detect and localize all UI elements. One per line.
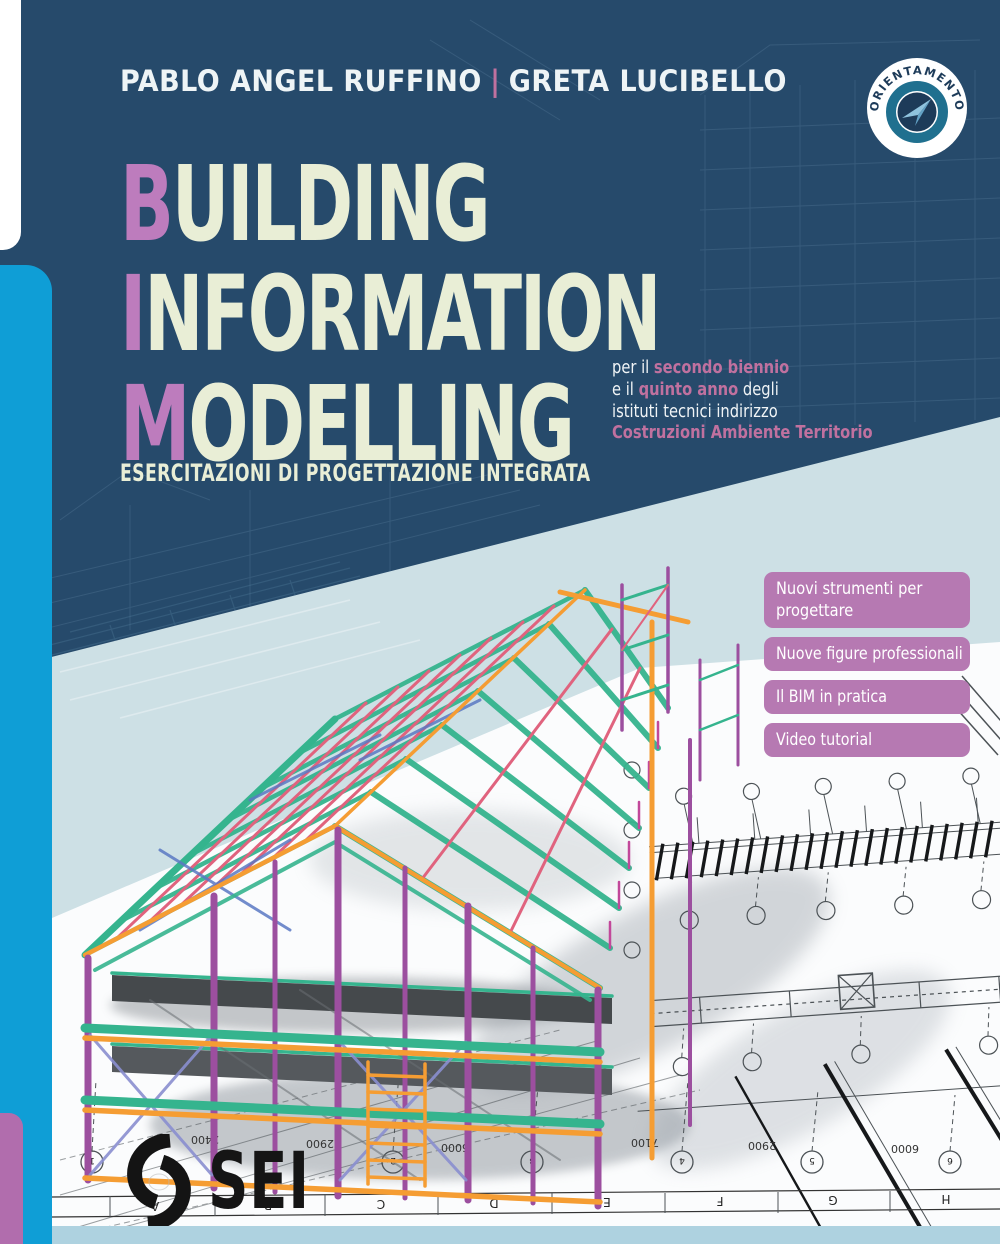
- left-cyan-strip: [0, 265, 52, 1244]
- svg-text:C: C: [377, 1197, 385, 1211]
- edition-text: istituti tecnici indirizzo: [612, 402, 873, 424]
- title-initial-i: I: [120, 253, 144, 375]
- feature-pill-2: Nuove figure professionali: [764, 637, 970, 671]
- left-pink-tab: [0, 1113, 23, 1244]
- author-separator: |: [482, 64, 509, 98]
- title-initial-b: B: [120, 143, 172, 265]
- sei-logo-icon: [126, 1134, 192, 1230]
- svg-text:5: 5: [809, 1155, 815, 1165]
- author-second: GRETA LUCIBELLO: [509, 64, 787, 98]
- svg-text:2900: 2900: [748, 1139, 776, 1152]
- feature-pill-1: Nuovi strumenti per progettare: [764, 572, 970, 628]
- feature-label: Video tutorial: [776, 729, 872, 751]
- svg-text:6: 6: [947, 1155, 953, 1165]
- title-line-1: BUILDING: [120, 152, 489, 256]
- edition-info: per il secondo biennio e il quinto anno …: [612, 358, 873, 445]
- title-rest-1: UILDING: [172, 143, 489, 265]
- feature-label: Il BIM in pratica: [776, 686, 887, 708]
- feature-pill-3: Il BIM in pratica: [764, 680, 970, 714]
- svg-text:6000: 6000: [891, 1142, 919, 1155]
- publisher-logo: SEI: [126, 1134, 349, 1230]
- left-white-tab: [0, 0, 21, 250]
- edition-highlight: Costruzioni Ambiente Territorio: [612, 423, 873, 445]
- author-first: PABLO ANGEL RUFFINO: [120, 64, 482, 98]
- publisher-name: SEI: [208, 1143, 310, 1221]
- svg-text:G: G: [828, 1193, 837, 1207]
- edition-highlight: secondo biennio: [654, 358, 789, 378]
- feature-list: Nuovi strumenti per progettare Nuove fig…: [764, 572, 970, 757]
- edition-text: per il: [612, 358, 654, 378]
- svg-text:F: F: [716, 1194, 723, 1208]
- feature-label: Nuovi strumenti per progettare: [776, 578, 959, 622]
- title-rest-2: NFORMATION: [144, 253, 659, 375]
- svg-text:7100: 7100: [631, 1136, 659, 1149]
- bottom-band: [0, 1226, 1000, 1244]
- authors: PABLO ANGEL RUFFINO|GRETA LUCIBELLO: [120, 64, 787, 98]
- title-line-2: INFORMATION: [120, 262, 659, 366]
- edition-highlight: quinto anno: [639, 380, 739, 400]
- feature-pill-4: Video tutorial: [764, 723, 970, 757]
- feature-label: Nuove figure professionali: [776, 643, 963, 665]
- edition-text: degli: [738, 380, 779, 400]
- subtitle: ESERCITAZIONI DI PROGETTAZIONE INTEGRATA: [120, 459, 590, 487]
- svg-text:E: E: [603, 1195, 611, 1209]
- svg-text:H: H: [941, 1192, 950, 1206]
- svg-text:4: 4: [679, 1155, 685, 1165]
- orientamento-badge: ORIENTAMENTO: [865, 56, 969, 160]
- edition-text: e il: [612, 380, 639, 400]
